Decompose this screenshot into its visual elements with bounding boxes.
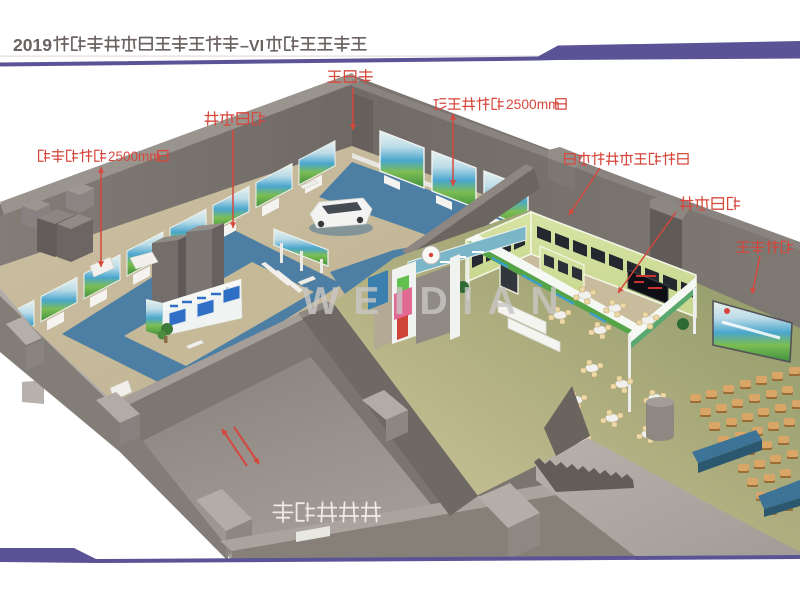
svg-text:2500mm: 2500mm — [108, 149, 161, 164]
svg-text:–VI: –VI — [240, 38, 264, 55]
svg-text:2500mm: 2500mm — [506, 97, 560, 112]
svg-text:WEIDIAN: WEIDIAN — [302, 280, 573, 323]
svg-text:2019: 2019 — [13, 35, 52, 55]
